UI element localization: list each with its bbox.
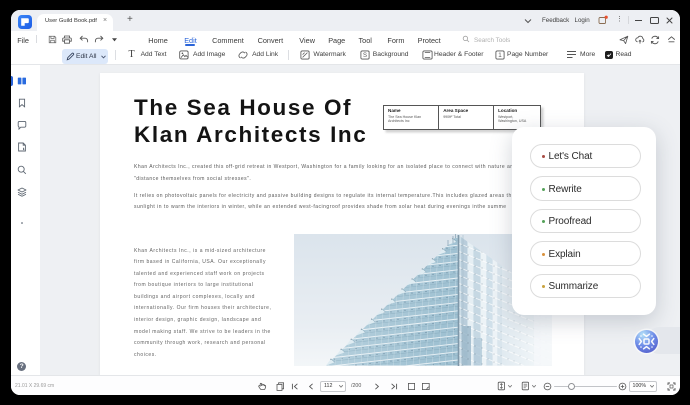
svg-text:S: S (363, 53, 367, 59)
svg-text:1: 1 (498, 52, 502, 59)
